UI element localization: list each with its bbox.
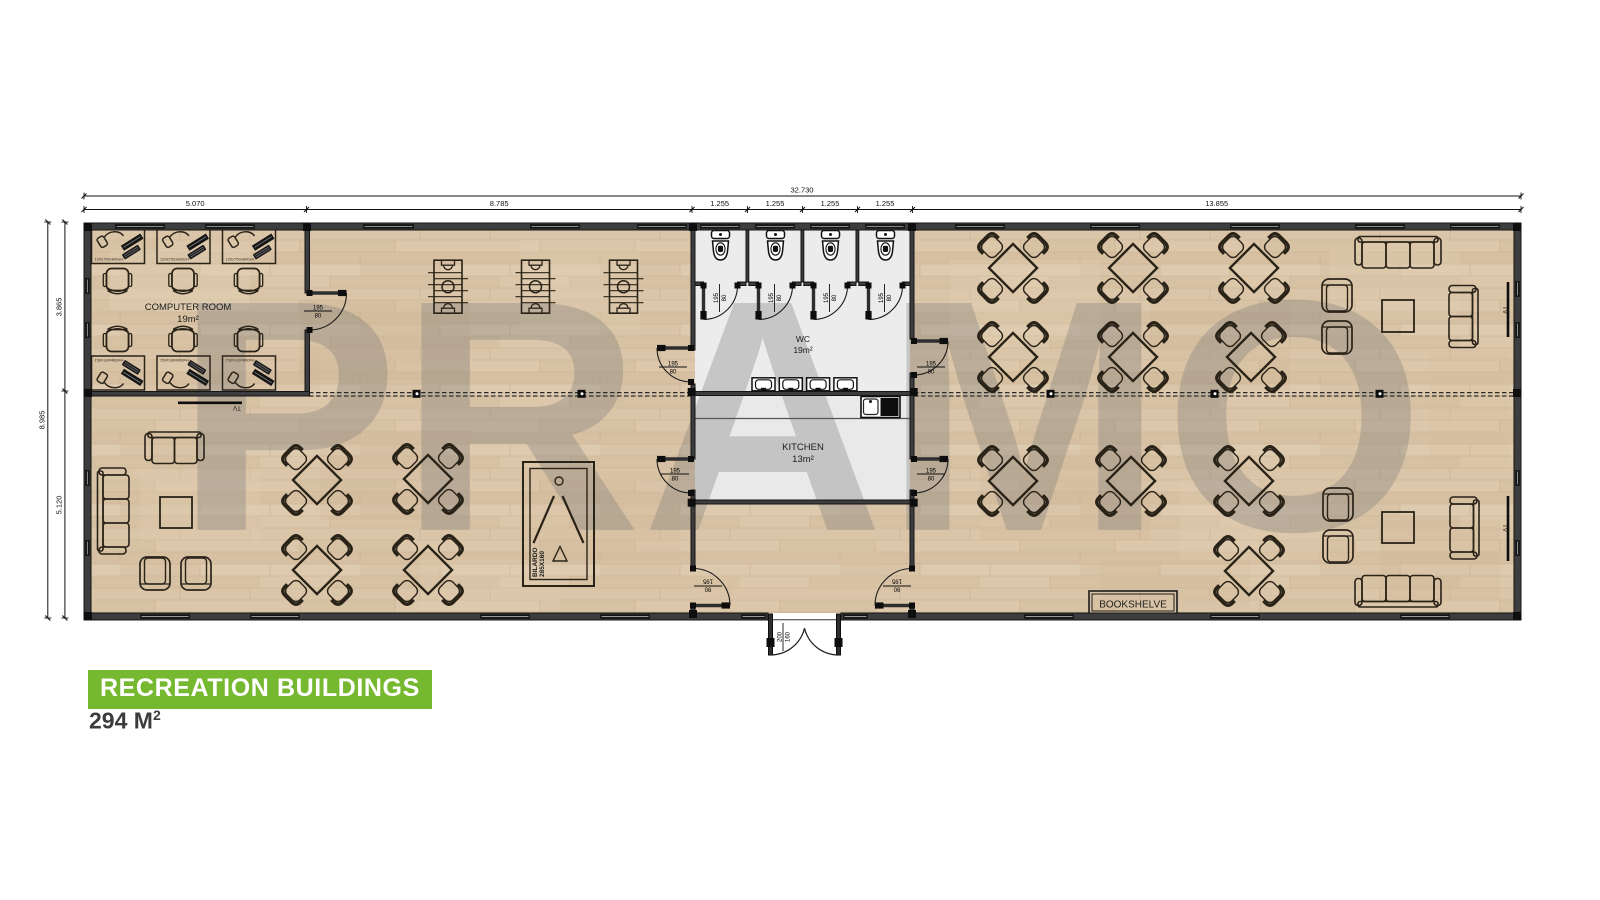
svg-text:5.070: 5.070 bbox=[186, 199, 205, 208]
svg-text:32.730: 32.730 bbox=[791, 186, 814, 195]
svg-text:1.255: 1.255 bbox=[710, 199, 729, 208]
svg-text:8.985: 8.985 bbox=[38, 411, 47, 430]
svg-text:80: 80 bbox=[832, 294, 838, 301]
svg-text:13m²: 13m² bbox=[792, 454, 814, 465]
svg-text:BILARDO: BILARDO bbox=[532, 547, 539, 577]
svg-text:13.855: 13.855 bbox=[1205, 199, 1228, 208]
svg-text:1.255: 1.255 bbox=[876, 199, 895, 208]
svg-text:TV: TV bbox=[1501, 306, 1507, 314]
svg-text:19m²: 19m² bbox=[177, 314, 199, 325]
svg-text:WC: WC bbox=[796, 334, 810, 344]
svg-text:80: 80 bbox=[722, 294, 728, 301]
svg-text:1.255: 1.255 bbox=[766, 199, 785, 208]
svg-text:COMPUTER ROOM: COMPUTER ROOM bbox=[145, 302, 232, 313]
svg-text:90: 90 bbox=[704, 586, 711, 592]
svg-text:TV: TV bbox=[233, 404, 241, 410]
svg-text:195: 195 bbox=[926, 362, 937, 368]
svg-text:80: 80 bbox=[928, 477, 935, 483]
svg-text:TV: TV bbox=[1501, 524, 1507, 532]
svg-text:1.255: 1.255 bbox=[821, 199, 840, 208]
svg-text:195: 195 bbox=[824, 292, 830, 303]
svg-text:3.865: 3.865 bbox=[55, 298, 64, 317]
svg-text:80: 80 bbox=[315, 314, 322, 320]
svg-text:195: 195 bbox=[769, 292, 775, 303]
svg-text:195: 195 bbox=[891, 578, 902, 584]
svg-text:195: 195 bbox=[714, 292, 720, 303]
svg-text:BOOKSHELVE: BOOKSHELVE bbox=[1099, 600, 1167, 611]
svg-text:80: 80 bbox=[777, 294, 783, 301]
svg-text:80: 80 bbox=[928, 370, 935, 376]
svg-text:19m²: 19m² bbox=[793, 345, 813, 355]
svg-text:90: 90 bbox=[893, 586, 900, 592]
svg-text:160: 160 bbox=[786, 631, 792, 642]
svg-text:195: 195 bbox=[313, 306, 324, 312]
svg-text:195: 195 bbox=[879, 292, 885, 303]
svg-text:8.785: 8.785 bbox=[490, 199, 509, 208]
svg-text:195: 195 bbox=[668, 362, 679, 368]
svg-text:195: 195 bbox=[702, 578, 713, 584]
svg-text:195: 195 bbox=[670, 469, 681, 475]
svg-text:KITCHEN: KITCHEN bbox=[782, 442, 824, 453]
svg-text:200: 200 bbox=[778, 631, 784, 642]
svg-text:5.120: 5.120 bbox=[55, 496, 64, 515]
svg-text:80: 80 bbox=[670, 370, 677, 376]
svg-text:PRAMO: PRAMO bbox=[175, 231, 1425, 600]
svg-text:80: 80 bbox=[887, 294, 893, 301]
svg-text:80: 80 bbox=[672, 477, 679, 483]
svg-text:195: 195 bbox=[926, 469, 937, 475]
svg-text:285X160: 285X160 bbox=[539, 551, 546, 577]
